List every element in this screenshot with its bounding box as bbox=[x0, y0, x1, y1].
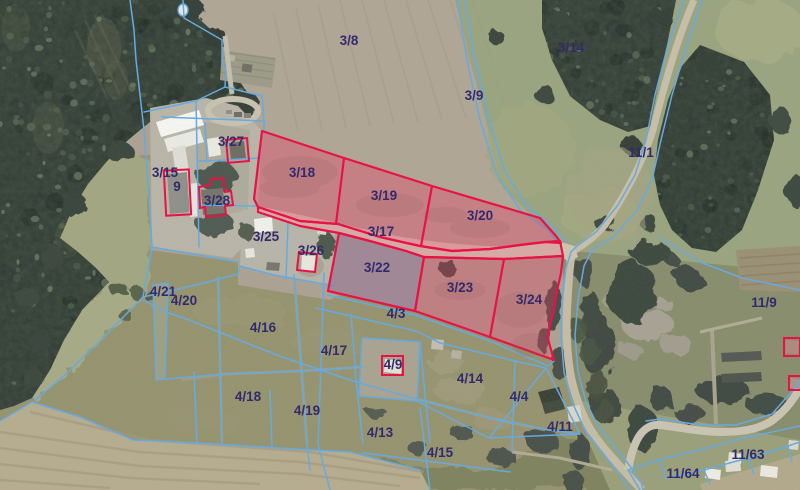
svg-text:11/9: 11/9 bbox=[751, 295, 777, 310]
svg-text:9: 9 bbox=[173, 179, 181, 194]
svg-text:4/16: 4/16 bbox=[250, 320, 277, 335]
svg-text:4/13: 4/13 bbox=[367, 425, 394, 440]
svg-text:3/9: 3/9 bbox=[465, 88, 484, 103]
svg-text:3/28: 3/28 bbox=[204, 193, 231, 208]
svg-text:3/23: 3/23 bbox=[447, 280, 474, 295]
svg-text:4/3: 4/3 bbox=[387, 306, 406, 321]
svg-text:4/14: 4/14 bbox=[457, 371, 484, 386]
svg-text:3/15: 3/15 bbox=[152, 165, 179, 180]
svg-text:4/11: 4/11 bbox=[547, 419, 573, 434]
svg-text:3/26: 3/26 bbox=[298, 243, 325, 258]
svg-text:11/63: 11/63 bbox=[731, 447, 765, 462]
svg-text:4/4: 4/4 bbox=[510, 389, 529, 404]
svg-text:4/9: 4/9 bbox=[384, 357, 403, 372]
svg-text:3/19: 3/19 bbox=[371, 188, 397, 203]
svg-text:3/18: 3/18 bbox=[289, 165, 316, 180]
svg-text:11/64: 11/64 bbox=[666, 466, 700, 481]
svg-text:3/25: 3/25 bbox=[253, 229, 280, 244]
svg-text:3/17: 3/17 bbox=[368, 224, 394, 239]
svg-text:3/24: 3/24 bbox=[516, 292, 543, 307]
svg-text:4/17: 4/17 bbox=[321, 343, 347, 358]
svg-text:3/20: 3/20 bbox=[467, 208, 493, 223]
svg-text:3/14: 3/14 bbox=[558, 40, 585, 55]
svg-text:4/20: 4/20 bbox=[171, 293, 197, 308]
svg-text:3/8: 3/8 bbox=[340, 33, 359, 48]
svg-text:3/27: 3/27 bbox=[218, 134, 244, 149]
svg-text:4/18: 4/18 bbox=[235, 389, 262, 404]
svg-text:11/1: 11/1 bbox=[628, 145, 654, 160]
svg-text:3/22: 3/22 bbox=[364, 260, 390, 275]
svg-text:4/19: 4/19 bbox=[294, 403, 320, 418]
svg-text:4/15: 4/15 bbox=[427, 445, 454, 460]
